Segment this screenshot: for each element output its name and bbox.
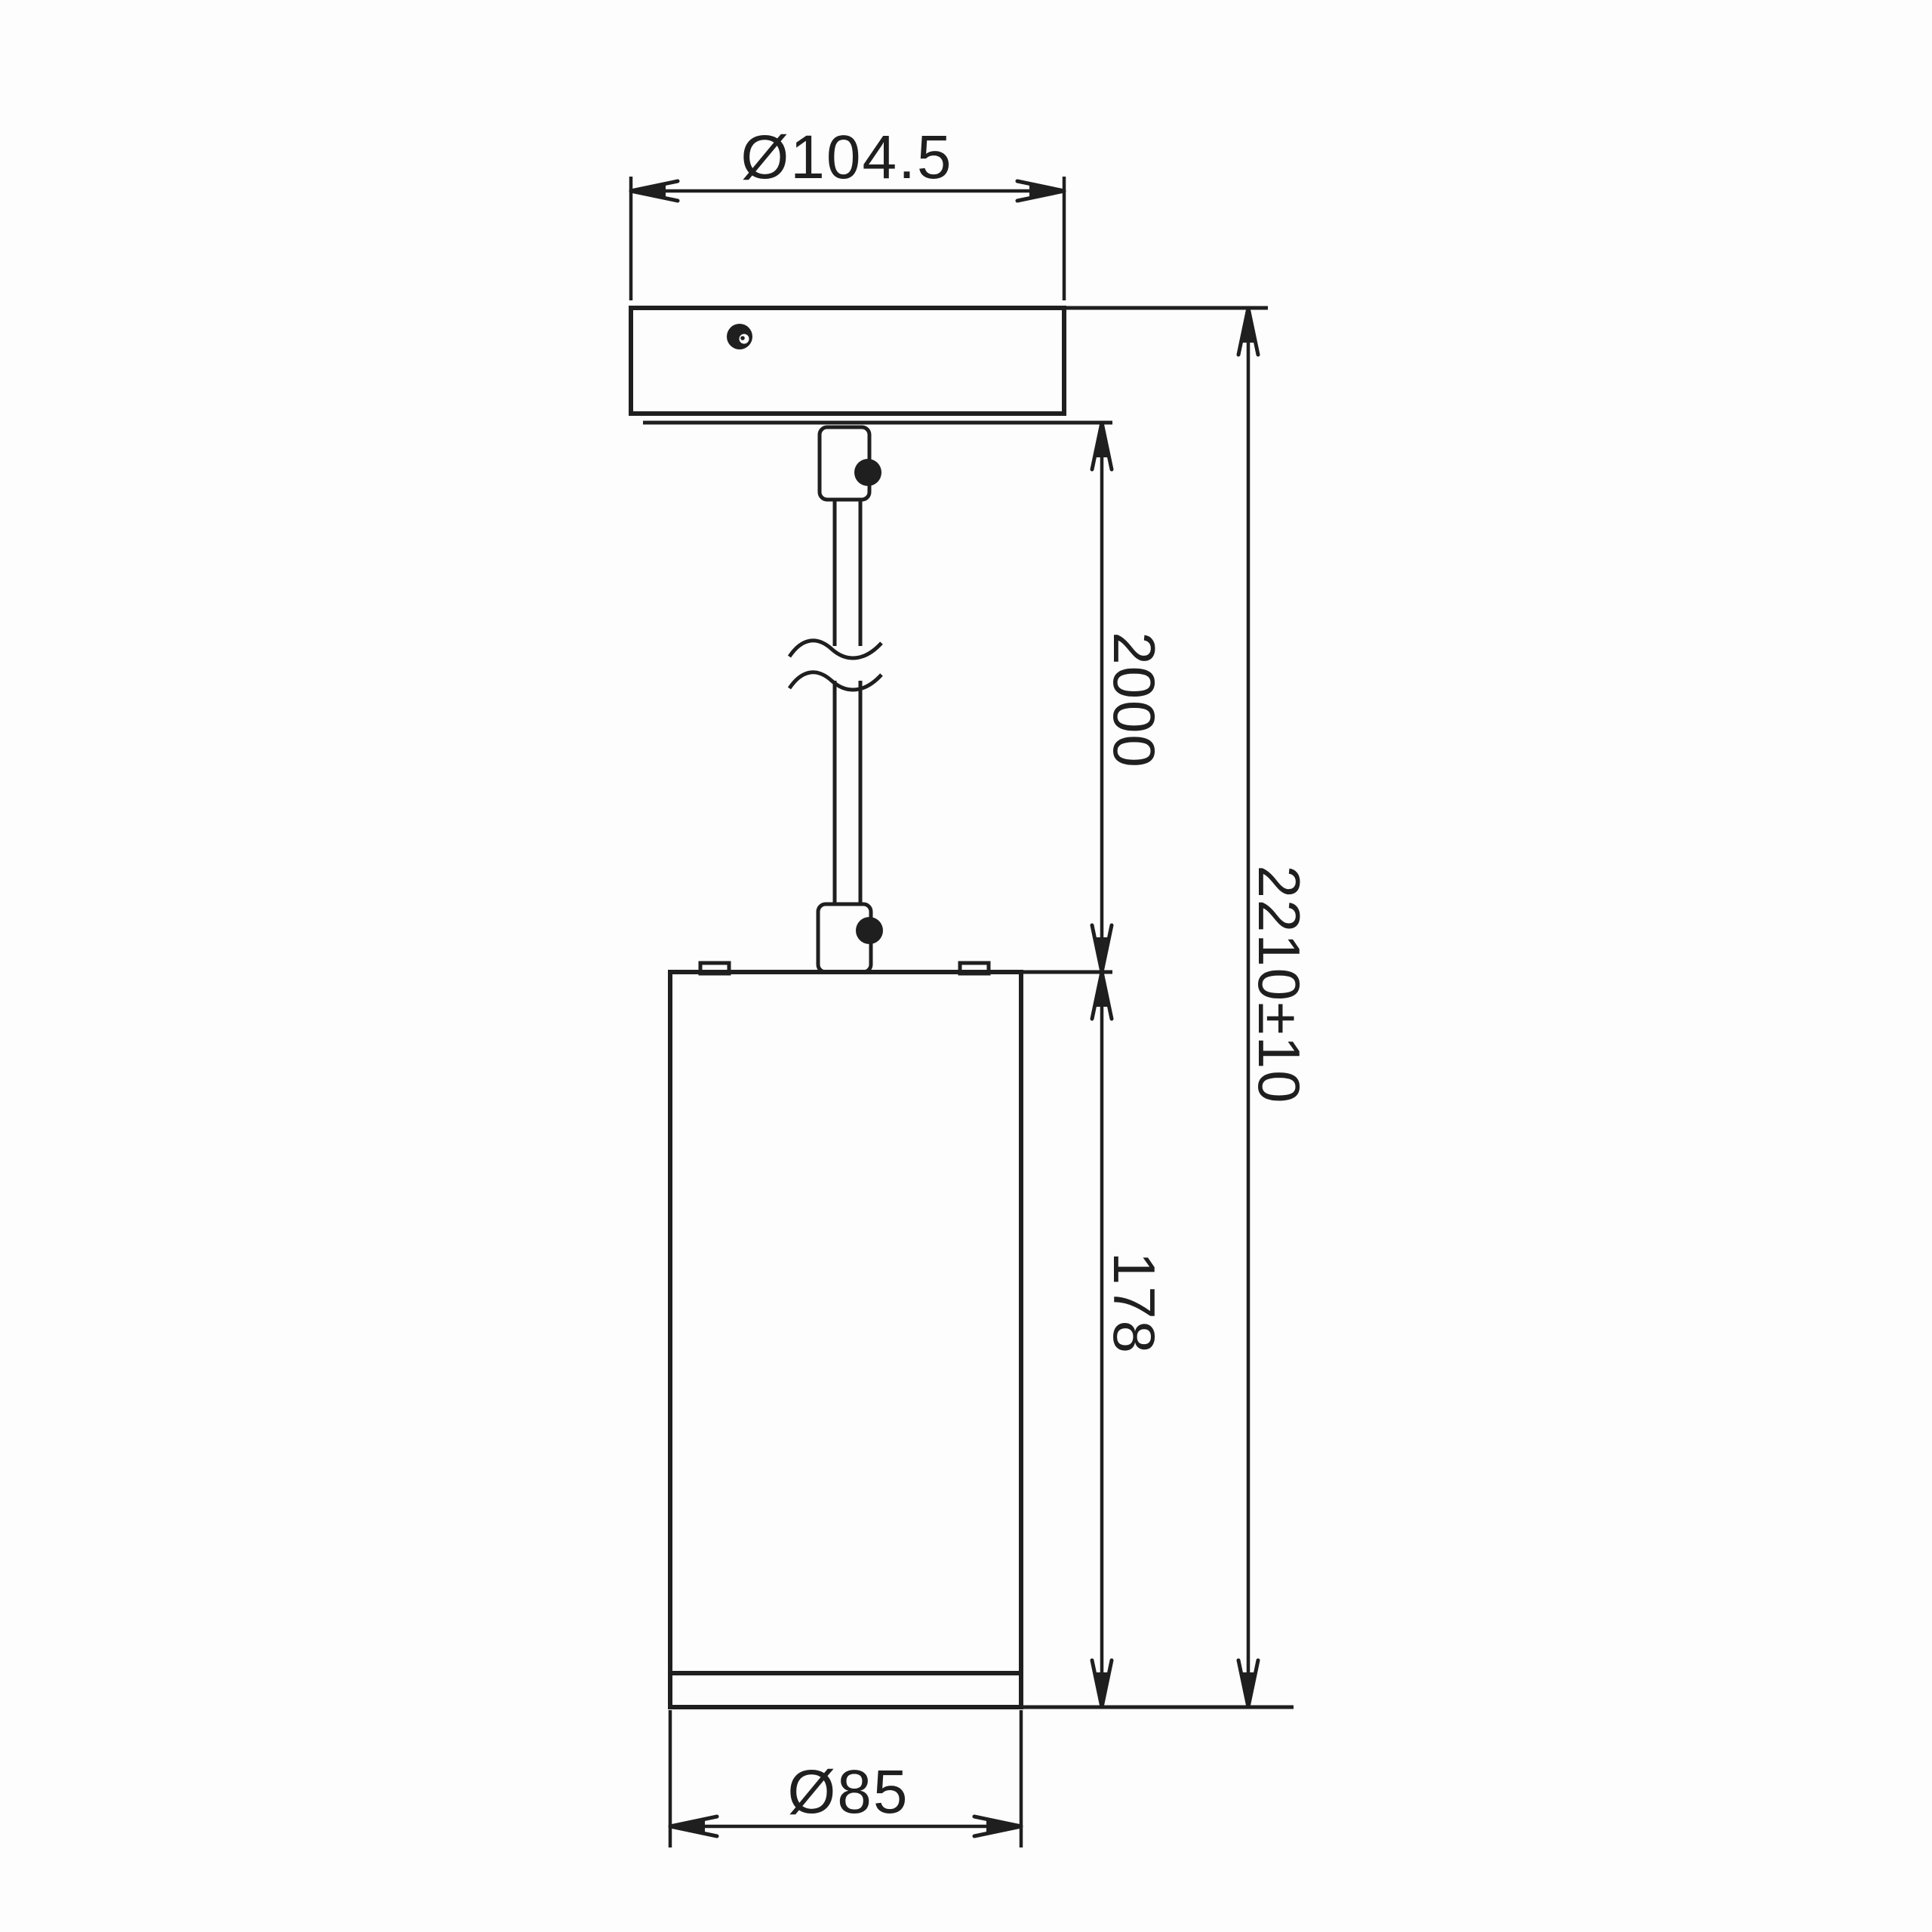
dim-overall-height: 2210±10	[1021, 308, 1312, 1707]
dim-label-canopy-diameter: Ø104.5	[741, 123, 953, 192]
dim-body-diameter: Ø85	[670, 1710, 1021, 1847]
pendant-light-dimension-drawing: Ø104.5	[0, 0, 1932, 1932]
cylinder-body	[670, 972, 1021, 1673]
canopy-body	[631, 308, 1064, 414]
technical-drawing-canvas: Ø104.5	[0, 0, 1932, 1932]
suspension-assembly	[789, 427, 883, 972]
dim-label-body-height: 178	[1101, 1252, 1168, 1355]
dim-label-overall-height: 2210±10	[1246, 865, 1312, 1104]
screw-head-icon	[727, 324, 752, 349]
dim-label-suspension-length: 2000	[1101, 632, 1168, 769]
bottom-trim-ring	[670, 1673, 1021, 1707]
dim-suspension-length: 2000	[1021, 423, 1168, 972]
lamp-body	[670, 963, 1021, 1707]
ceiling-canopy	[631, 308, 1112, 423]
dim-canopy-diameter: Ø104.5	[631, 123, 1064, 300]
set-screw-top-icon	[854, 459, 881, 486]
set-screw-bottom-icon	[856, 917, 883, 944]
dim-label-body-diameter: Ø85	[788, 1758, 909, 1826]
dim-body-height: 178	[1092, 972, 1168, 1707]
